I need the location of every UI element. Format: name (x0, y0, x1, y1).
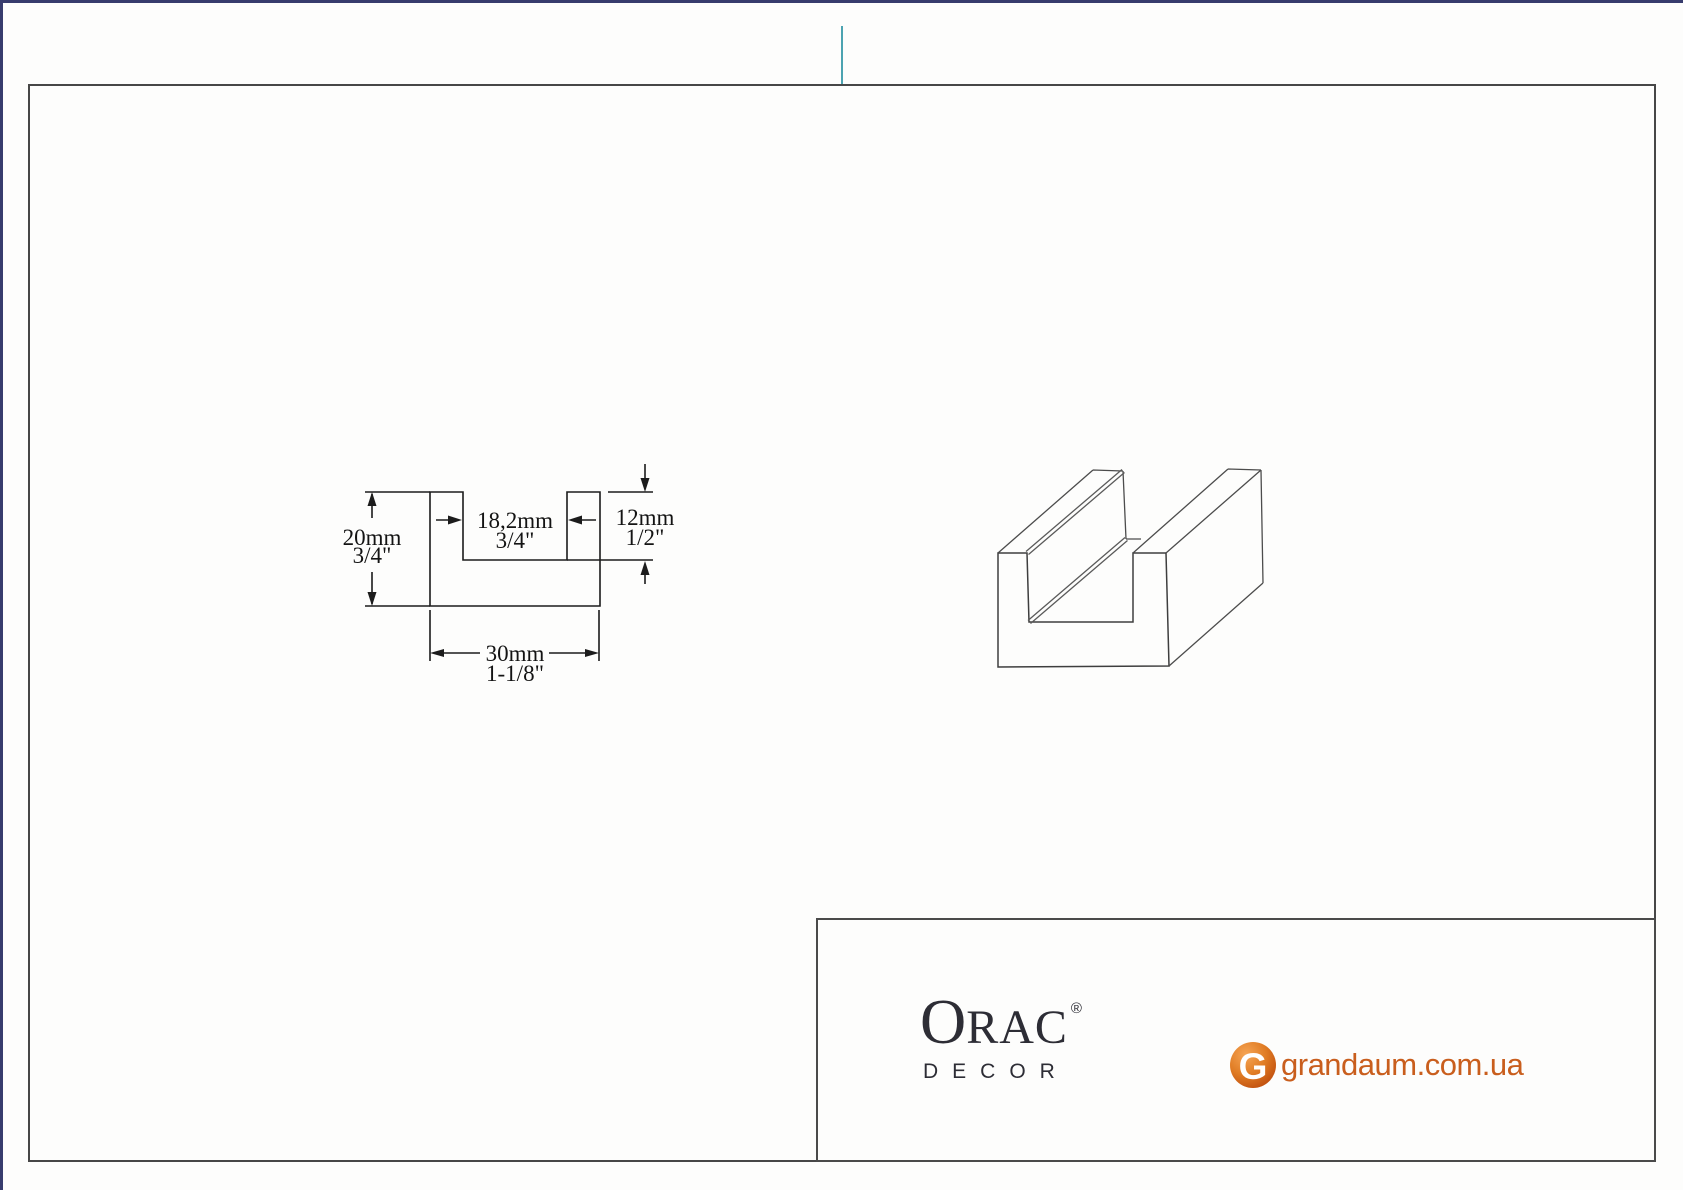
iso-front-face (998, 553, 1169, 667)
isometric-view (998, 469, 1263, 667)
depth-arrow-down (641, 478, 650, 492)
height-arrow-down (368, 592, 377, 606)
height-arrow-up (368, 492, 377, 506)
iso-groove-top-edge (1026, 470, 1125, 555)
cross-section-drawing: 20mm 3/4" 18,2mm 3/4" 12mm 1/2" 30mm 1-1… (343, 464, 675, 686)
inner-width-arrow-left (568, 516, 582, 525)
iso-receding-edges (998, 469, 1263, 666)
orac-decor-logo: ORAC® DECOR (920, 990, 1082, 1084)
inner-width-label-in: 3/4" (496, 528, 535, 553)
iso-groove-bottom-edge (1028, 538, 1128, 624)
orac-wordmark: ORAC® (920, 990, 1082, 1054)
grandaum-domain-text: grandaum.com.ua (1281, 1047, 1523, 1083)
spec-sheet-page: 20mm 3/4" 18,2mm 3/4" 12mm 1/2" 30mm 1-1… (0, 0, 1683, 1190)
inner-width-arrow-right (448, 516, 462, 525)
width-arrow-right (585, 649, 599, 657)
depth-arrow-up (641, 561, 650, 575)
grandaum-g-letter: G (1239, 1048, 1268, 1085)
orac-subtitle: DECOR (923, 1060, 1082, 1084)
width-label-in: 1-1/8" (486, 661, 544, 686)
grandaum-logo: G grandaum.com.ua (1230, 1042, 1523, 1088)
orac-rest: RAC (966, 1001, 1068, 1054)
orac-initial: O (920, 986, 966, 1057)
grandaum-g-icon: G (1230, 1042, 1276, 1088)
title-block-box: ORAC® DECOR G grandaum.com.ua (816, 918, 1656, 1162)
width-arrow-left (430, 649, 444, 657)
depth-label-in: 1/2" (626, 525, 665, 550)
registered-trademark-icon: ® (1071, 1000, 1082, 1017)
height-label-in: 3/4" (353, 543, 392, 568)
